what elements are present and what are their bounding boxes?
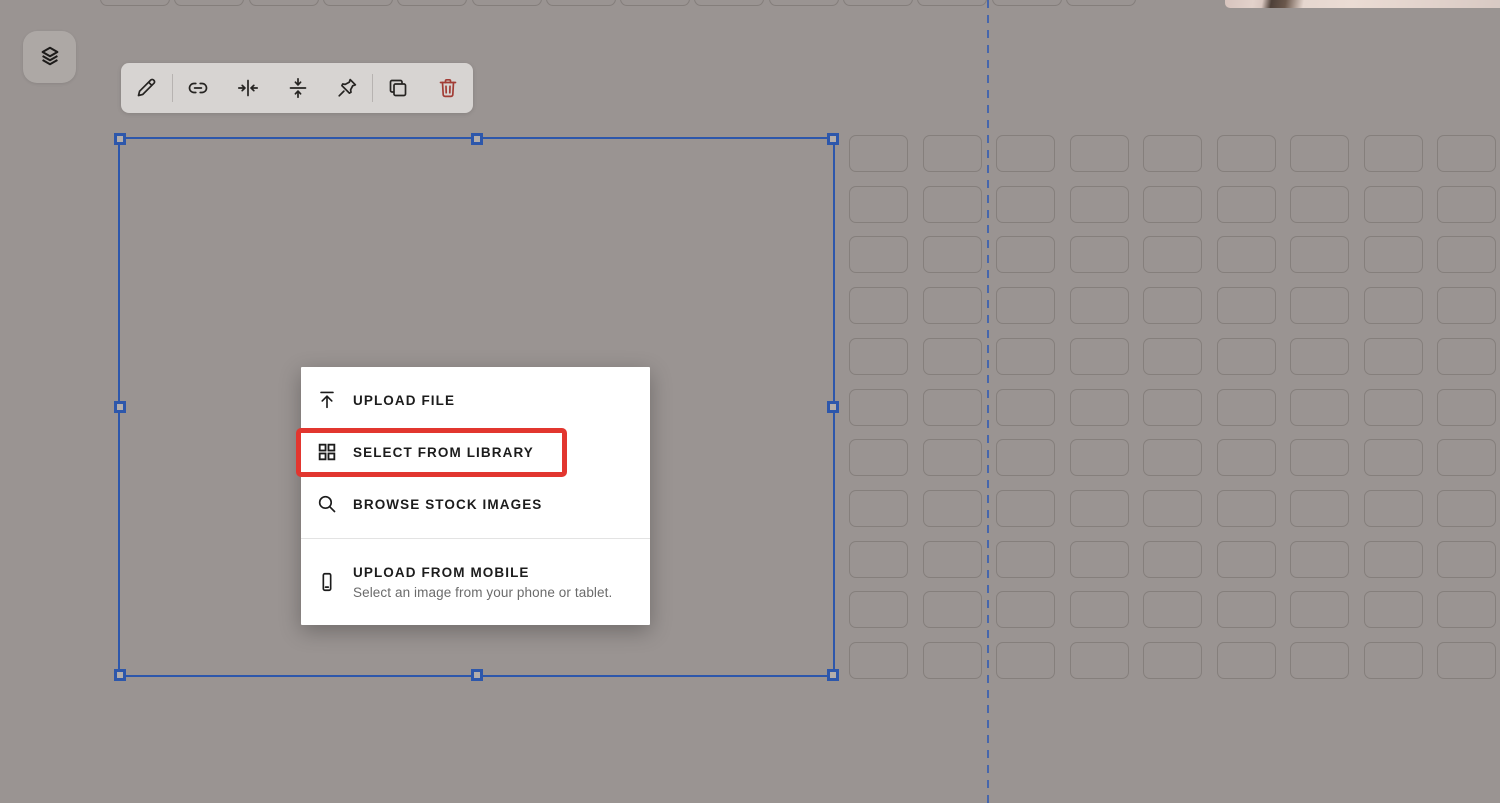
- top-partial-cell: [917, 0, 987, 6]
- upload-icon: [316, 389, 338, 411]
- spacer-cell: [1437, 490, 1496, 527]
- spacer-cell: [923, 490, 982, 527]
- spacer-cell: [923, 186, 982, 223]
- selection-handle[interactable]: [827, 401, 839, 413]
- spacer-cell: [1290, 338, 1349, 375]
- spacer-cell: [1217, 541, 1276, 578]
- spacer-cell: [849, 287, 908, 324]
- menu-item-select-from-library[interactable]: SELECT FROM LIBRARY: [301, 426, 650, 478]
- spacer-cell: [1143, 439, 1202, 476]
- pencil-icon: [134, 76, 158, 100]
- spacer-cell: [1143, 642, 1202, 679]
- spacer-cell: [996, 135, 1055, 172]
- selection-handle[interactable]: [114, 669, 126, 681]
- spacer-cell: [849, 490, 908, 527]
- menu-item-label: UPLOAD FILE: [353, 393, 455, 408]
- selection-handle[interactable]: [471, 669, 483, 681]
- spacer-cell: [1070, 490, 1129, 527]
- spacer-cell: [996, 439, 1055, 476]
- spacer-cell: [1437, 389, 1496, 426]
- spacer-cell: [849, 591, 908, 628]
- selection-handle[interactable]: [114, 401, 126, 413]
- spacer-cell: [1217, 338, 1276, 375]
- spacer-cell: [1217, 490, 1276, 527]
- spacer-cell: [1364, 642, 1423, 679]
- spacer-cell: [1143, 490, 1202, 527]
- link-button[interactable]: [173, 63, 223, 113]
- spacer-cell: [1070, 135, 1129, 172]
- spacer-cell: [1217, 186, 1276, 223]
- spacer-cell: [1364, 439, 1423, 476]
- spacer-cell: [996, 338, 1055, 375]
- delete-button[interactable]: [423, 63, 473, 113]
- top-partial-cell: [546, 0, 616, 6]
- spacer-cell: [1143, 236, 1202, 273]
- spacer-cell: [1437, 642, 1496, 679]
- selection-handle[interactable]: [114, 133, 126, 145]
- spacer-cell: [1290, 186, 1349, 223]
- align-horizontal-center-button[interactable]: [223, 63, 273, 113]
- spacer-cell: [1437, 236, 1496, 273]
- spacer-cell: [1437, 287, 1496, 324]
- menu-item-upload-from-mobile[interactable]: UPLOAD FROM MOBILE Select an image from …: [301, 539, 650, 625]
- spacer-cell: [849, 236, 908, 273]
- duplicate-button[interactable]: [373, 63, 423, 113]
- spacer-cell: [1364, 389, 1423, 426]
- menu-item-label: SELECT FROM LIBRARY: [353, 445, 534, 460]
- library-grid-icon: [316, 441, 338, 463]
- spacer-cell: [1364, 236, 1423, 273]
- spacer-cell: [1070, 591, 1129, 628]
- menu-item-upload-file[interactable]: UPLOAD FILE: [301, 374, 650, 426]
- spacer-cell: [1070, 186, 1129, 223]
- spacer-cell: [1290, 236, 1349, 273]
- spacer-cell: [849, 135, 908, 172]
- spacer-cell: [1290, 389, 1349, 426]
- top-partial-cell: [694, 0, 764, 6]
- vertical-guide-line: [987, 0, 989, 803]
- spacer-cell: [923, 287, 982, 324]
- spacer-cell: [1290, 591, 1349, 628]
- spacer-cell: [996, 490, 1055, 527]
- spacer-cell: [1364, 135, 1423, 172]
- spacer-cell: [1217, 135, 1276, 172]
- spacer-cell: [1070, 236, 1129, 273]
- spacer-cell: [996, 389, 1055, 426]
- top-partial-cell: [472, 0, 542, 6]
- spacer-cell: [1290, 135, 1349, 172]
- spacer-cell: [1217, 439, 1276, 476]
- selection-handle[interactable]: [471, 133, 483, 145]
- menu-item-sublabel: Select an image from your phone or table…: [353, 585, 612, 600]
- spacer-cell: [1143, 389, 1202, 426]
- spacer-cell: [1070, 439, 1129, 476]
- pin-icon: [335, 76, 359, 100]
- spacer-cell: [1290, 642, 1349, 679]
- spacer-cell: [923, 541, 982, 578]
- top-partial-cell: [100, 0, 170, 6]
- menu-item-label: BROWSE STOCK IMAGES: [353, 497, 542, 512]
- spacer-cell: [1437, 541, 1496, 578]
- spacer-cell: [1070, 287, 1129, 324]
- spacer-cell: [996, 287, 1055, 324]
- spacer-cell: [849, 541, 908, 578]
- spacer-cell: [1364, 541, 1423, 578]
- spacer-cell: [849, 338, 908, 375]
- pin-button[interactable]: [322, 63, 372, 113]
- spacer-cell: [923, 135, 982, 172]
- layers-icon: [36, 43, 64, 71]
- spacer-cell: [1290, 287, 1349, 324]
- spacer-cell: [923, 236, 982, 273]
- spacer-cell: [1290, 541, 1349, 578]
- menu-spacer: [301, 530, 650, 538]
- top-partial-cell: [249, 0, 319, 6]
- duplicate-icon: [386, 76, 410, 100]
- top-partial-cell: [397, 0, 467, 6]
- mobile-phone-icon: [316, 571, 338, 593]
- page-image-fragment: [1225, 0, 1500, 8]
- spacer-cell: [1364, 338, 1423, 375]
- spacer-cell: [1143, 135, 1202, 172]
- spacer-cell: [1143, 591, 1202, 628]
- spacer-cell: [1143, 541, 1202, 578]
- spacer-cell: [996, 591, 1055, 628]
- top-partial-cell: [620, 0, 690, 6]
- spacer-cell: [996, 541, 1055, 578]
- layers-panel-button[interactable]: [23, 31, 76, 83]
- spacer-cell: [1217, 389, 1276, 426]
- spacer-cell: [1290, 490, 1349, 527]
- spacer-cell: [1364, 591, 1423, 628]
- spacer-cell: [996, 236, 1055, 273]
- spacer-cell: [849, 186, 908, 223]
- spacer-cell: [1217, 642, 1276, 679]
- spacer-cell: [1437, 186, 1496, 223]
- spacer-cell: [1364, 490, 1423, 527]
- search-icon: [316, 493, 338, 515]
- spacer-cell: [996, 642, 1055, 679]
- spacer-cell: [1143, 338, 1202, 375]
- edit-button[interactable]: [121, 63, 172, 113]
- spacer-cell: [1437, 591, 1496, 628]
- menu-item-browse-stock-images[interactable]: BROWSE STOCK IMAGES: [301, 478, 650, 530]
- menu-item-label: UPLOAD FROM MOBILE: [353, 565, 612, 580]
- link-icon: [186, 76, 210, 100]
- top-partial-cell: [843, 0, 913, 6]
- spacer-cell: [1217, 591, 1276, 628]
- spacer-cell: [1217, 287, 1276, 324]
- selection-handle[interactable]: [827, 669, 839, 681]
- align-vertical-center-icon: [286, 76, 310, 100]
- spacer-cell: [849, 439, 908, 476]
- spacer-cell: [1070, 389, 1129, 426]
- spacer-cell: [1364, 186, 1423, 223]
- selection-handle[interactable]: [827, 133, 839, 145]
- top-partial-grid: [100, 0, 1200, 7]
- spacer-cell: [1290, 439, 1349, 476]
- spacer-cell: [849, 642, 908, 679]
- top-partial-cell: [323, 0, 393, 6]
- spacer-cell: [923, 389, 982, 426]
- spacer-cell: [1070, 338, 1129, 375]
- spacer-cell: [1437, 338, 1496, 375]
- spacer-cell: [923, 439, 982, 476]
- spacer-cell: [1070, 541, 1129, 578]
- spacer-grid: [849, 135, 1500, 695]
- spacer-cell: [923, 338, 982, 375]
- image-source-menu: UPLOAD FILE SELECT FROM LIBRARY BROWSE S…: [301, 367, 650, 625]
- spacer-cell: [996, 186, 1055, 223]
- spacer-cell: [1364, 287, 1423, 324]
- top-partial-cell: [769, 0, 839, 6]
- top-partial-cell: [992, 0, 1062, 6]
- spacer-cell: [849, 389, 908, 426]
- spacer-cell: [1217, 236, 1276, 273]
- spacer-cell: [1143, 186, 1202, 223]
- align-vertical-center-button[interactable]: [273, 63, 323, 113]
- spacer-cell: [923, 642, 982, 679]
- trash-icon: [436, 76, 460, 100]
- spacer-cell: [1437, 135, 1496, 172]
- spacer-cell: [1070, 642, 1129, 679]
- top-partial-cell: [1066, 0, 1136, 6]
- spacer-cell: [1437, 439, 1496, 476]
- top-partial-cell: [174, 0, 244, 6]
- align-horizontal-center-icon: [236, 76, 260, 100]
- spacer-cell: [923, 591, 982, 628]
- spacer-cell: [1143, 287, 1202, 324]
- block-toolbar: [121, 63, 473, 113]
